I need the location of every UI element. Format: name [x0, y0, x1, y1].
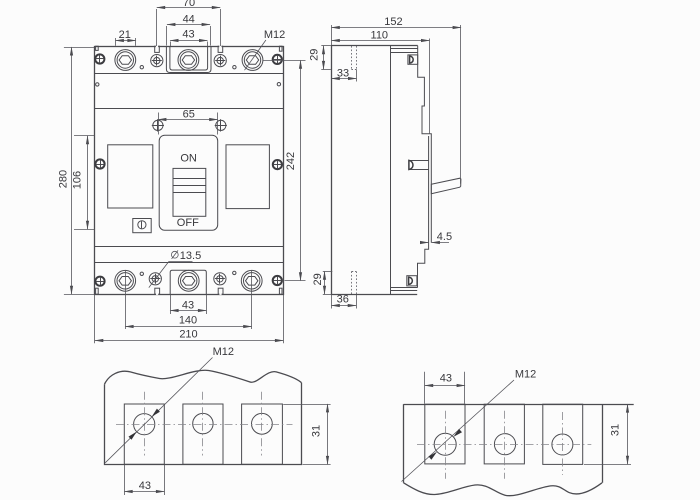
svg-text:M12: M12 [264, 29, 285, 41]
svg-text:43: 43 [139, 480, 151, 492]
svg-text:210: 210 [179, 328, 197, 340]
svg-text:M12: M12 [515, 368, 536, 380]
svg-text:65: 65 [183, 108, 195, 120]
svg-text:29: 29 [309, 49, 321, 61]
svg-text:43: 43 [440, 372, 452, 384]
svg-text:43: 43 [182, 299, 194, 311]
svg-text:21: 21 [119, 29, 131, 41]
svg-text:33: 33 [337, 67, 349, 79]
svg-text:M12: M12 [213, 346, 234, 358]
svg-text:110: 110 [371, 29, 389, 41]
svg-text:29: 29 [312, 273, 324, 285]
svg-text:31: 31 [609, 424, 621, 436]
svg-text:106: 106 [72, 171, 84, 189]
svg-text:36: 36 [337, 294, 349, 306]
svg-text:152: 152 [384, 16, 402, 28]
svg-text:43: 43 [182, 29, 194, 41]
svg-text:ON: ON [180, 153, 197, 165]
svg-text:140: 140 [179, 314, 197, 326]
svg-text:13.5: 13.5 [180, 250, 201, 262]
svg-text:44: 44 [183, 14, 195, 26]
svg-text:OFF: OFF [177, 217, 199, 229]
svg-text:242: 242 [285, 152, 297, 170]
svg-text:4.5: 4.5 [437, 231, 452, 243]
svg-text:31: 31 [311, 425, 323, 437]
svg-text:280: 280 [58, 170, 70, 188]
